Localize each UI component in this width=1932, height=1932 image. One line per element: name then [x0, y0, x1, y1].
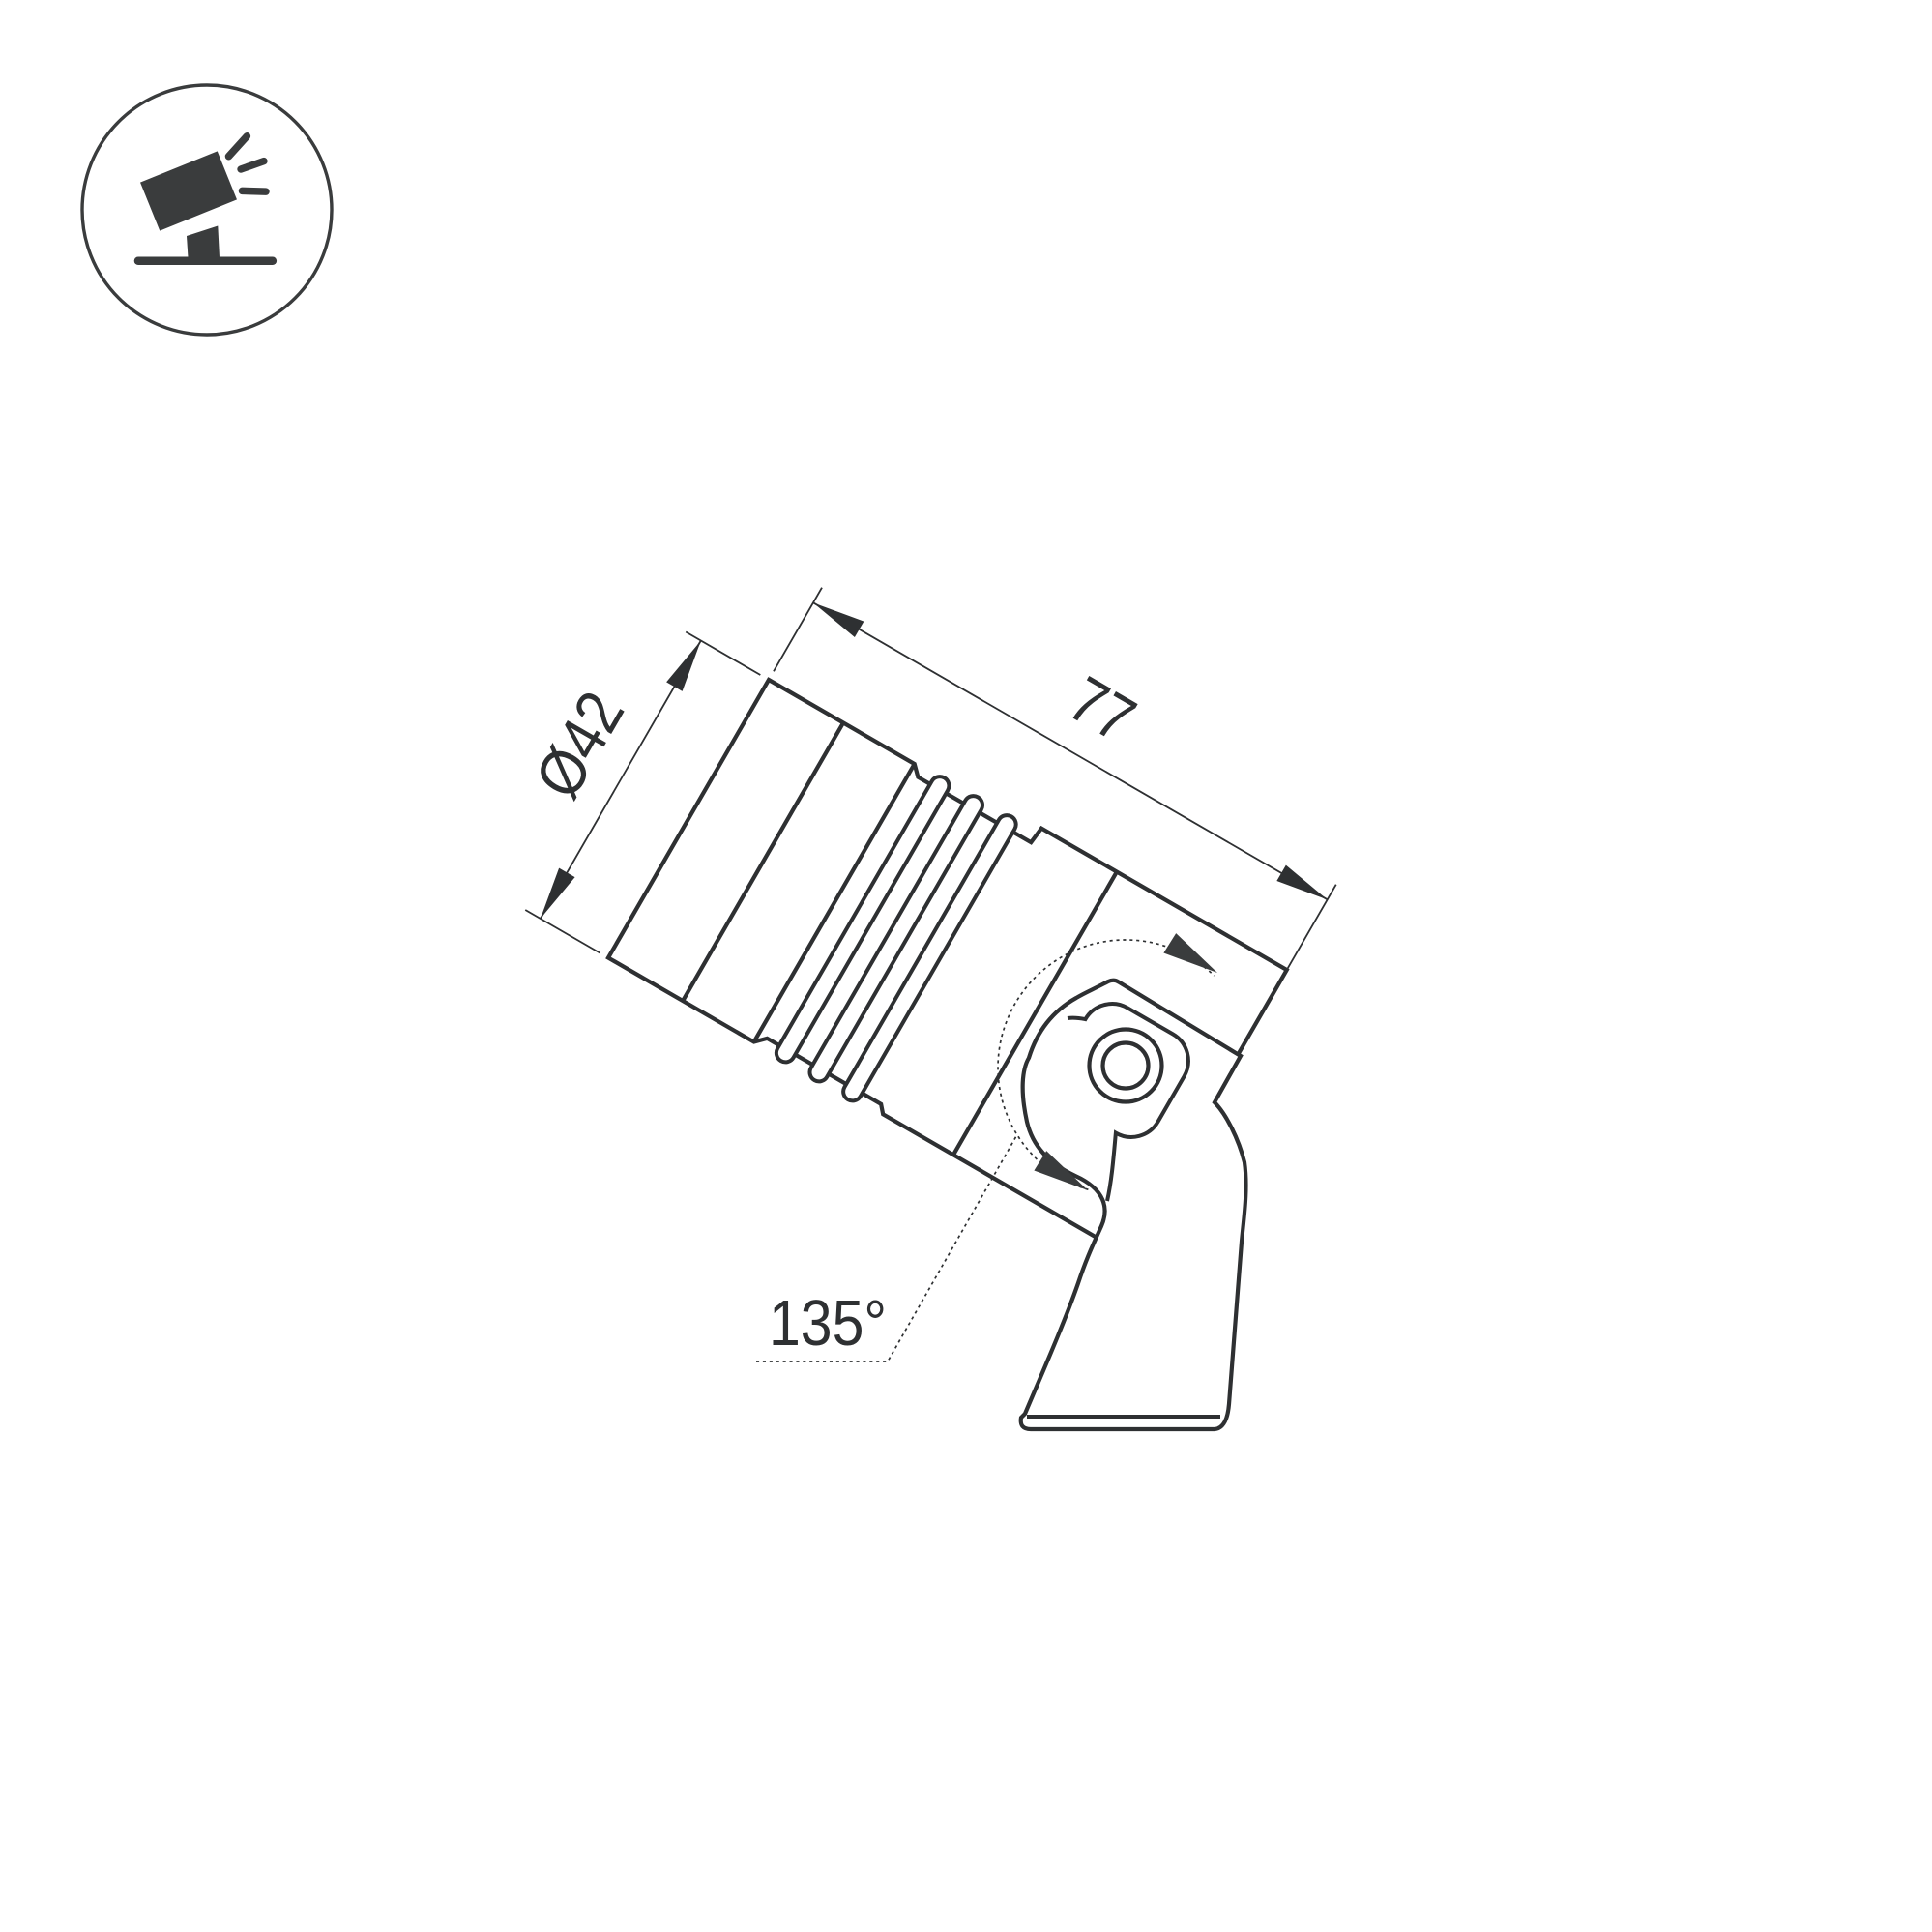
svg-text:135°: 135° — [769, 1287, 887, 1360]
